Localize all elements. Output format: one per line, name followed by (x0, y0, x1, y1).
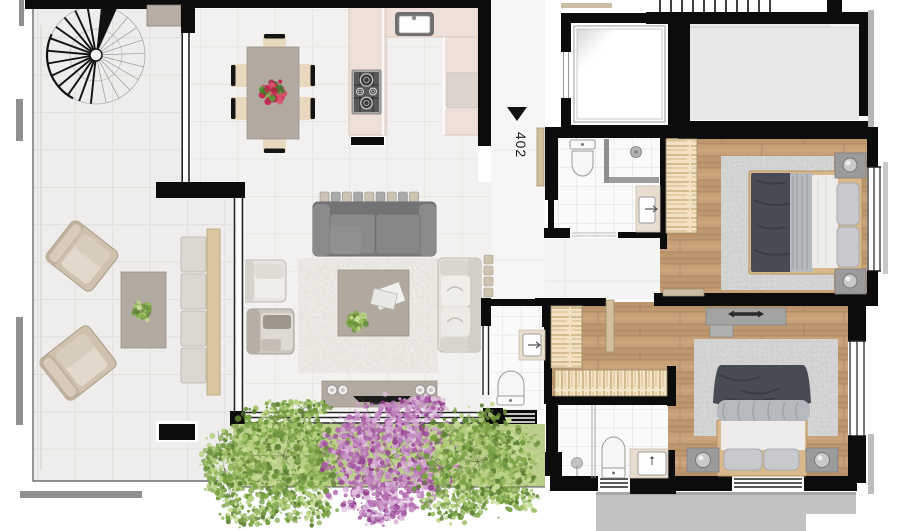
svg-text:402: 402 (513, 132, 529, 158)
